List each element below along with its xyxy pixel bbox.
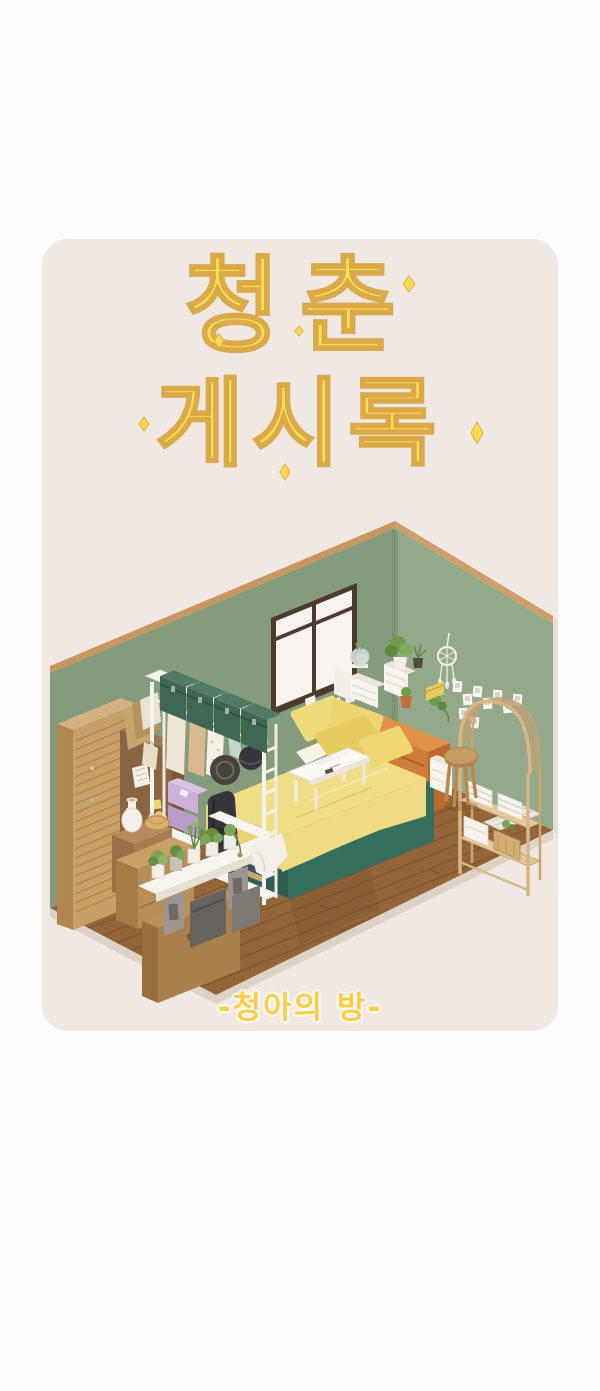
caption: -청아의 방- [0,982,600,1027]
cover-card [42,239,558,1031]
webtoon-cover-page: { "page": { "background_color": "#FEFDFC… [0,0,600,1391]
